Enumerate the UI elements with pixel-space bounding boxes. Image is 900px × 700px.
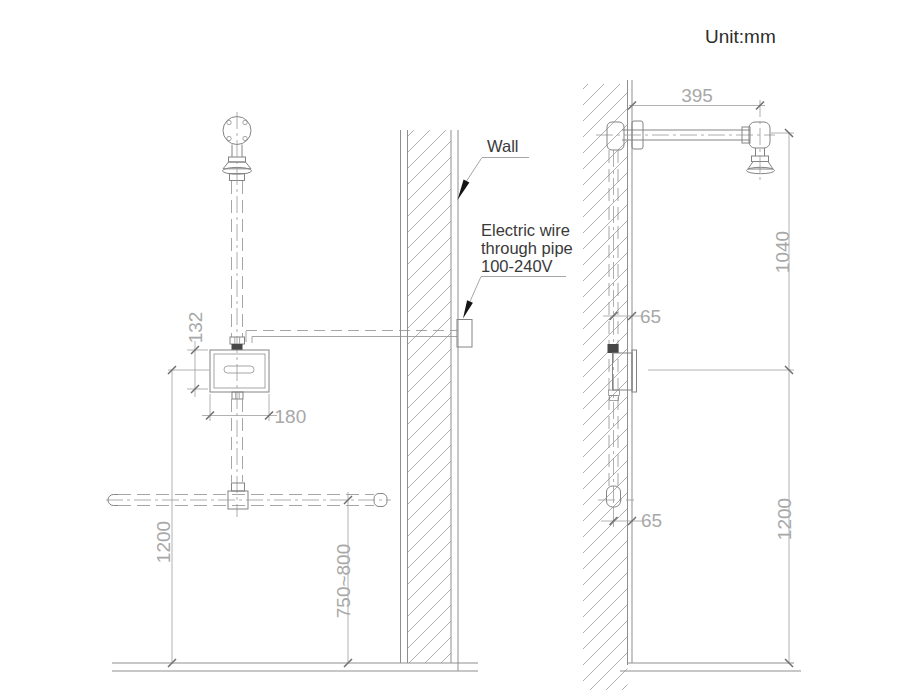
dim-text-180: 180 <box>275 406 307 427</box>
dim-text-65-bottom: 65 <box>641 510 662 531</box>
installation-drawing: Unit:mm <box>0 0 900 700</box>
wall-hatch-front <box>408 130 452 663</box>
dim-text-750-800: 750~800 <box>333 544 354 619</box>
dim-text-1040: 1040 <box>772 231 793 273</box>
sensor-bottom-fitting <box>232 392 243 399</box>
unit-label: Unit:mm <box>705 26 776 47</box>
wall-leader-line <box>467 158 530 182</box>
electric-wire-callout: Electric wire through pipe 100-240V <box>463 221 573 319</box>
floor-line-side <box>620 663 801 671</box>
electric-label-line3: 100-240V <box>481 257 553 275</box>
floor-line-front <box>112 663 478 671</box>
dim-arm-length: 395 <box>628 85 765 110</box>
dim-sensor-height: 132 <box>185 312 209 397</box>
sensor-box-front <box>210 350 269 392</box>
dim-supply-height: 750~800 <box>333 492 354 667</box>
wall-hatch-side <box>583 84 628 690</box>
dim-text-1200-front: 1200 <box>153 521 174 563</box>
dim-mounting-height-front: 1200 <box>153 366 210 667</box>
front-dimensions: 132 180 1200 750~800 <box>153 312 355 667</box>
dim-heights-side: 1040 1200 <box>648 129 795 667</box>
junction-box <box>457 320 472 348</box>
electric-leader-arrow-icon <box>463 300 473 318</box>
wall-callout: Wall <box>458 137 530 201</box>
wall-face-side <box>628 80 633 665</box>
wall-label: Wall <box>487 137 518 155</box>
dim-text-1200-side: 1200 <box>774 498 795 540</box>
dim-text-65-top: 65 <box>640 306 661 327</box>
side-dimensions: 395 1040 1200 65 65 <box>601 85 795 667</box>
tee-hub <box>232 483 245 491</box>
electric-label-line1: Electric wire <box>481 221 570 239</box>
wall-section-front <box>112 130 478 671</box>
wall-section-side <box>583 80 801 690</box>
sensor-window <box>224 366 254 373</box>
electric-label-line2: through pipe <box>481 239 573 257</box>
sensor-face-plate <box>632 350 637 392</box>
dim-text-395: 395 <box>681 85 713 106</box>
dim-sensor-width: 180 <box>202 394 306 427</box>
wall-leader-arrow-icon <box>458 180 470 200</box>
electric-leader-line <box>470 277 566 302</box>
dim-text-132: 132 <box>185 312 206 344</box>
